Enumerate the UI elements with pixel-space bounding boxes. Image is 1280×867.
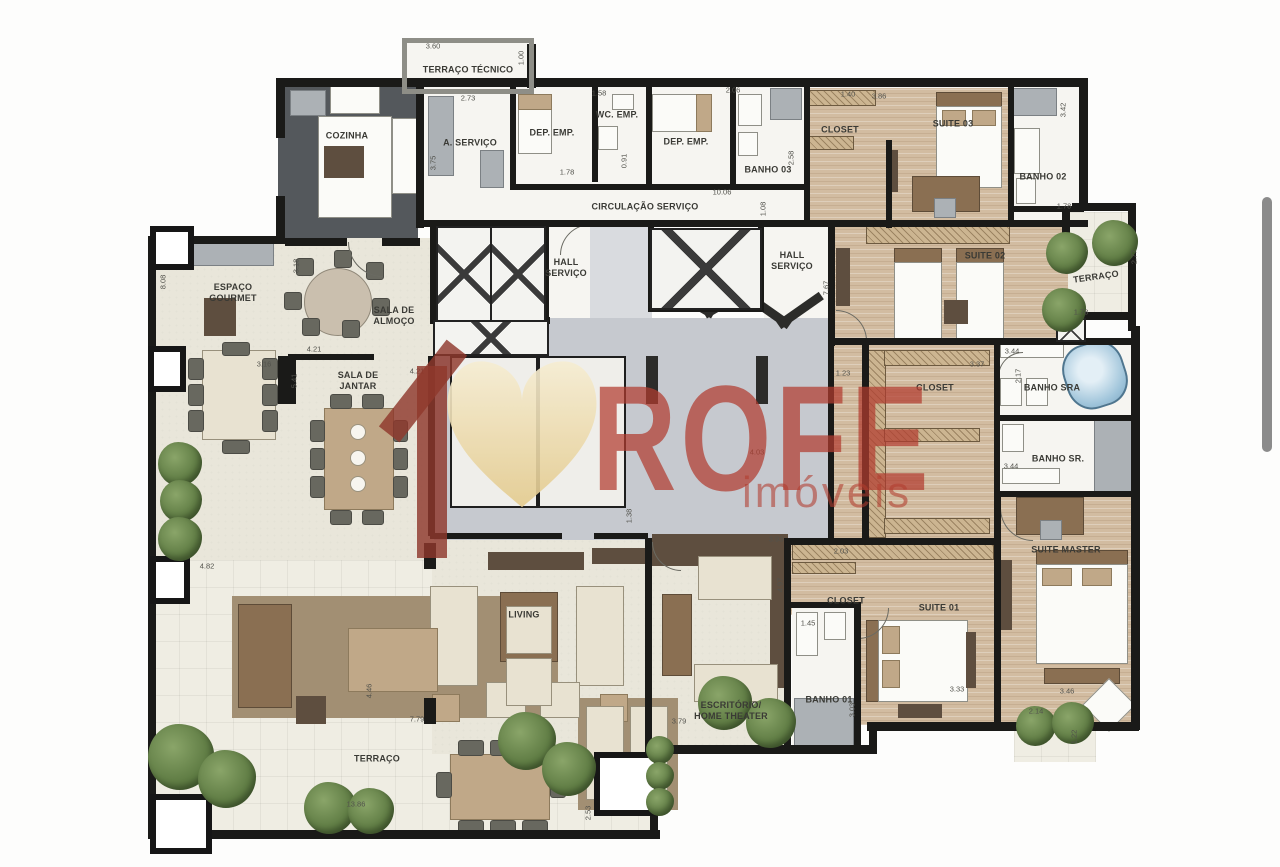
dimension-label: 3.42 [1059,103,1068,118]
planter-box [148,346,186,392]
chair [188,384,204,406]
dimension-label: 3.03 [848,703,857,718]
wardrobe [884,428,980,442]
room-label: BANHO 01 [805,695,852,706]
chair [393,420,408,442]
chair [330,510,352,525]
chair [222,440,250,454]
dimension-label: 3.33 [950,685,965,694]
plate [350,424,366,440]
wall [148,830,660,839]
elevator-cabin [538,356,626,508]
laundry-tub [480,150,504,188]
dimension-label: 3.46 [1060,687,1075,696]
room-label: DEP. EMP. [530,128,575,139]
dimension-label: 4.21 [410,367,425,376]
wardrobe [868,350,886,538]
wall [594,533,648,539]
chair [302,318,320,336]
chair [934,198,956,218]
chair [284,292,302,310]
dimension-label: 7.67 [822,281,831,296]
dimension-label: 1.58 [592,89,607,98]
dimension-label: 3.93 [769,535,784,544]
wall [510,82,516,186]
chair [436,772,452,798]
pillow [882,660,900,688]
dimension-label: 0.91 [620,154,629,169]
floor-plan: TERRAÇO TÉCNICOCOZINHAA. SERVIÇODEP. EMP… [0,0,1280,867]
wall [276,78,1088,87]
wardrobe [866,226,1010,244]
dimension-label: 1.08 [759,202,768,217]
wall [510,184,808,190]
chair [330,394,352,409]
room-label: CLOSET [821,125,859,136]
kitchen-appliances [392,118,418,194]
kitchen-counter [330,86,380,114]
shower [794,698,854,748]
dimension-label: 1.22 [1070,730,1079,745]
shower [770,88,802,120]
room-label: SUITE MASTER [1031,545,1100,556]
dimension-label: 3.79 [672,717,687,726]
wall [646,82,652,186]
wall [996,491,1134,497]
lobby-floor [588,226,652,320]
wall [994,345,1000,497]
room-label: CIRCULAÇÃO SERVIÇO [592,202,699,213]
dimension-label: 2.17 [1014,369,1023,384]
screenshot: TERRAÇO TÉCNICOCOZINHAA. SERVIÇODEP. EMP… [0,0,1280,867]
dimension-label: 3.44 [1005,347,1020,356]
stairs [433,320,549,356]
wall [1008,206,1084,212]
shower [1013,88,1057,116]
tv-panel [966,632,976,688]
dimension-label: 3.75 [429,156,438,171]
dimension-label: 4.03 [750,448,765,457]
kitchen-table [324,146,364,178]
dresser [836,248,850,306]
room-label: WC. EMP. [596,110,638,121]
chair [393,476,408,498]
dimension-label: 5.41 [290,374,299,389]
door-slot [646,356,658,404]
side-table [432,694,460,722]
elevator-shaft [490,226,546,322]
room-label: LIVING [508,610,539,621]
chair [188,358,204,380]
dimension-label: 2.14 [1029,707,1044,716]
pillow [882,626,900,654]
wall [382,238,420,246]
room-label: TERRAÇO TÉCNICO [423,65,514,76]
dimension-label: 2.73 [461,94,476,103]
wall [416,78,424,228]
chair [310,448,325,470]
chair [362,510,384,525]
planter-box [150,794,212,854]
pillow [1082,568,1112,586]
dimension-label: 10.06 [713,188,732,197]
dimension-label: 4.82 [200,562,215,571]
dimension-label: 8.08 [159,275,168,290]
dresser [898,704,942,718]
chair [310,420,325,442]
chair [310,476,325,498]
dimension-label: 4.21 [307,345,322,354]
dimension-label: 4.97 [776,578,785,593]
dimension-label: 2.06 [726,86,741,95]
pillow [518,94,552,110]
dimension-label: 1.78 [1057,202,1072,211]
room-label: TERRAÇO [354,754,400,765]
wardrobe [792,562,856,574]
planter-box [150,556,190,604]
toilet [824,612,846,640]
dimension-label: 2.77 [1130,250,1139,265]
dimension-label: 1.23 [836,369,851,378]
dimension-label: 4.46 [365,684,374,699]
suite02-floor [830,226,1068,346]
dimension-label: 3.16 [257,360,272,369]
room-label: SALA DE ALMOÇO [373,305,414,327]
room-label: COZINHA [326,131,368,142]
wall [424,543,436,569]
dimension-label: 1.45 [801,619,816,628]
elevator-shaft [436,226,492,322]
dimension-label: 3.18 [292,259,301,274]
sofa [576,586,624,686]
chair [458,740,484,756]
elevator-cabin [450,356,538,508]
chair [362,394,384,409]
room-label: BANHO 02 [1019,172,1066,183]
dresser [1000,560,1012,630]
wall [1008,82,1014,226]
room-label: DEP. EMP. [664,137,709,148]
plate [350,450,366,466]
dimension-label: 3.86 [872,92,887,101]
shower [1094,420,1134,492]
closet-master-floor [830,345,996,541]
room-label: CLOSET [827,596,865,607]
room-label: ESPAÇO GOURMET [209,282,256,304]
coffee-table [348,628,438,692]
dimension-label: 3.60 [426,42,441,51]
room-label: ESCRITÓRIO/ HOME THEATER [694,700,768,722]
wall [1079,78,1088,210]
wall [786,538,998,545]
dimension-label: 13.86 [347,800,366,809]
outdoor-chair [506,658,552,706]
side-table [944,300,968,324]
wall [276,196,285,244]
chair [188,410,204,432]
elevator-shaft [650,228,762,310]
planter-box [150,226,194,270]
wall [804,82,810,226]
room-label: SUITE 01 [919,603,960,614]
pillow [1042,568,1072,586]
wall [285,238,347,246]
chair [342,320,360,338]
wall [430,533,562,539]
dimension-label: 7.79 [410,715,425,724]
door-slot [756,356,768,404]
dimension-label: 2.58 [787,151,796,166]
wardrobe [884,518,990,534]
dimension-label: 1.00 [517,51,526,66]
toilet [738,132,758,156]
room-label: BANHO SRA [1024,383,1080,394]
wall [645,538,652,752]
dimension-label: 3.44 [1004,462,1019,471]
vanity [1014,128,1040,174]
wall [886,140,892,228]
chair [262,384,278,406]
room-label: BANHO 03 [744,165,791,176]
wardrobe [808,136,854,150]
toilet [598,126,618,150]
dimension-label: 3.37 [970,360,985,369]
pillow [696,94,712,132]
bookshelf [662,594,692,676]
room-label: HALL SERVIÇO [545,257,587,279]
room-label: HALL SERVIÇO [771,250,813,272]
wall [996,415,1134,421]
wall [276,78,285,138]
wall [828,345,834,541]
kitchen-sink [290,90,326,116]
wall [428,356,435,536]
plate [350,476,366,492]
console [488,552,584,570]
chair [222,342,250,356]
dimension-label: 1.40 [841,90,856,99]
scrollbar-thumb[interactable] [1262,197,1272,452]
wardrobe [792,544,994,560]
wall [730,82,736,188]
dimension-label: 2.03 [834,547,849,556]
dimension-label: 1.78 [560,168,575,177]
wall [867,722,1139,731]
wall [1131,326,1140,730]
chair [393,448,408,470]
toilet [1002,424,1024,452]
chaise [698,556,772,600]
sink [738,94,762,126]
wall [828,338,1136,345]
room-label: SALA DE JANTAR [338,370,379,392]
room-label: SUITE 03 [933,119,974,130]
dimension-label: 2.53 [584,806,593,821]
dimension-label: 1.78 [1074,308,1089,317]
bed [894,262,942,340]
wall [288,354,374,360]
room-label: CLOSET [916,383,954,394]
dimension-label: 1.38 [625,509,634,524]
room-label: BANHO SR. [1032,454,1084,465]
chair [262,410,278,432]
sink [612,94,634,110]
outdoor-sofa [238,604,292,708]
wall [994,497,1001,727]
room-label: SUITE 02 [965,251,1006,262]
wall [862,345,869,543]
wall [424,698,436,724]
side-table [296,696,326,724]
tree [646,788,674,816]
chair [1040,520,1062,540]
room-label: A. SERVIÇO [443,138,497,149]
wall [854,602,861,754]
pillow [972,110,996,126]
